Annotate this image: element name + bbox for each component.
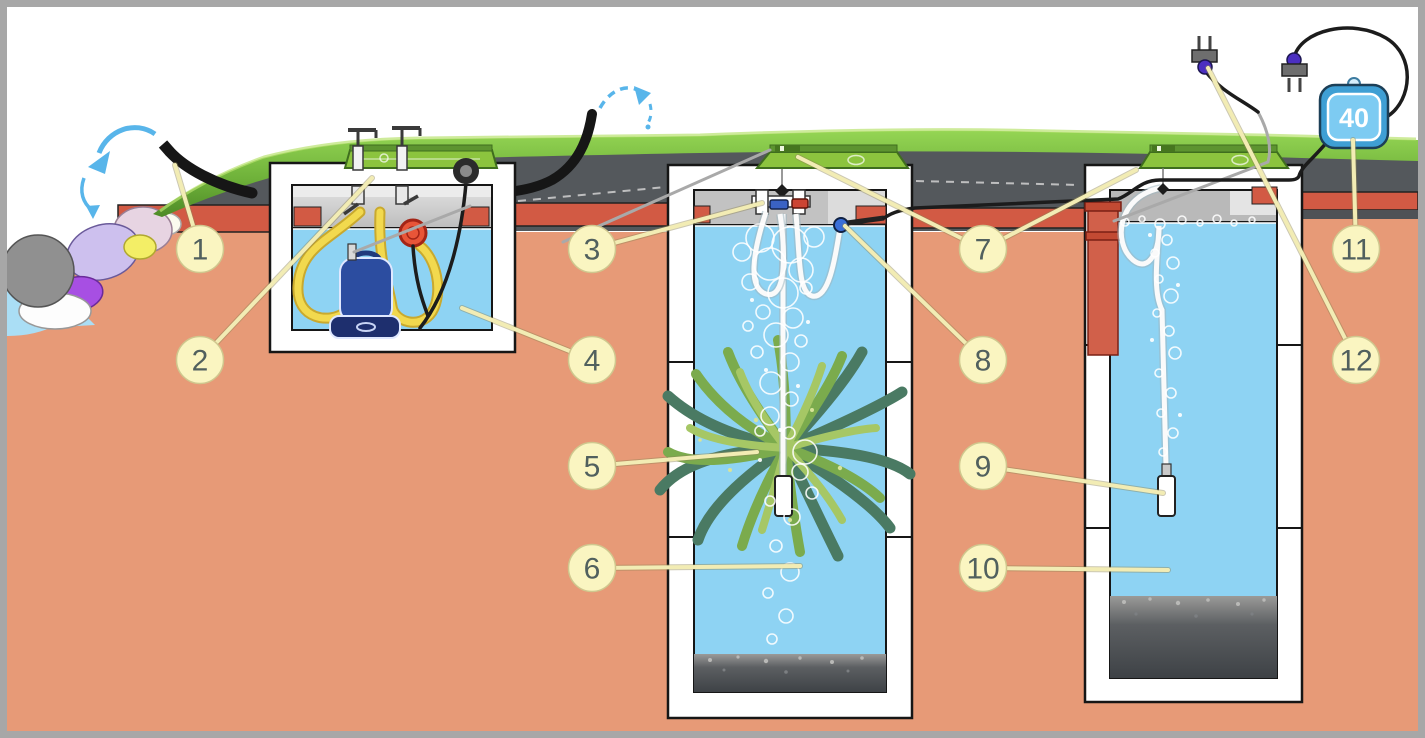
tank3-settling-chamber: [1085, 145, 1302, 702]
tank2-lid: [757, 152, 908, 168]
air-pump-capacity-label: 40: [1339, 103, 1369, 133]
tank3-sludge: [1110, 596, 1277, 678]
callout-2: 2: [177, 337, 224, 384]
callout-5: 5: [569, 443, 616, 490]
callout-6-number: 6: [584, 553, 601, 586]
inlet-pipe-body: [1088, 207, 1118, 355]
callout-1-number: 1: [192, 234, 209, 267]
tank2-lid-hatch: [775, 145, 800, 152]
arrow-tail-head: [86, 205, 100, 219]
leader-6: [592, 566, 800, 568]
tap-riser: [353, 146, 363, 170]
tank2-lid-hatch-slit: [780, 146, 784, 151]
callout-11: 11: [1333, 226, 1380, 273]
callout-12: 12: [1333, 337, 1380, 384]
callout-4: 4: [569, 337, 616, 384]
tank3-lid-hatch-slit: [1157, 146, 1161, 151]
flow-arrow-vent-icon: [600, 86, 651, 130]
pump-base: [330, 316, 400, 338]
callout-10-number: 10: [966, 553, 999, 586]
callout-10: 10: [960, 545, 1007, 592]
tank1-lid-edge: [350, 145, 492, 151]
valve-handle-red: [792, 199, 808, 208]
callout-4-number: 4: [584, 345, 601, 378]
leader-10: [983, 568, 1168, 570]
tap-riser: [397, 146, 407, 170]
arrow-arc: [99, 128, 155, 153]
valve-handle-blue: [770, 200, 788, 209]
arrow-tail: [82, 178, 92, 210]
callout-5-number: 5: [584, 451, 601, 484]
tank3-lid: [1140, 152, 1288, 168]
outlet-pipe-mouth: [163, 144, 170, 152]
callout-6: 6: [569, 545, 616, 592]
diagram-canvas: 40 1 2 3 4 5 6 7 8 9 10 11 12: [0, 0, 1425, 738]
pump-body: [340, 258, 392, 322]
callout-11-number: 11: [1340, 234, 1371, 267]
callout-3-number: 3: [584, 234, 601, 267]
arrow-tail: [648, 104, 651, 123]
callout-2-number: 2: [192, 345, 209, 378]
subbase-band-right: [1302, 210, 1418, 219]
tank2-filter-chamber: [660, 145, 912, 718]
stone: [124, 235, 156, 259]
callout-9-number: 9: [975, 451, 992, 484]
diffuser-connector: [1162, 464, 1171, 476]
callout-7-number: 7: [975, 234, 992, 267]
callout-8: 8: [960, 337, 1007, 384]
tank2-sediment: [694, 654, 886, 692]
brick-band-right: [1302, 192, 1418, 210]
arrow-dot: [646, 125, 651, 130]
tank3-inlet-pipe: [1085, 202, 1121, 355]
arrow-head: [88, 151, 110, 174]
grommet-inner: [460, 165, 472, 177]
cable-grommet-icon: [453, 158, 479, 184]
stone: [2, 235, 74, 307]
tank3-air-diffuser-icon: [1158, 476, 1175, 516]
plug-body: [1282, 64, 1307, 76]
arrow-head: [634, 86, 651, 105]
inlet-pipe-joint: [1086, 232, 1120, 240]
callout-9: 9: [960, 443, 1007, 490]
callout-1: 1: [177, 226, 224, 273]
diagram-screenshot: 40 1 2 3 4 5 6 7 8 9 10 11 12: [0, 0, 1425, 738]
tank1-brick-left: [294, 207, 321, 226]
callout-3: 3: [569, 226, 616, 273]
callout-8-number: 8: [975, 345, 992, 378]
inlet-pipe-cap: [1085, 202, 1121, 211]
callout-7: 7: [960, 226, 1007, 273]
callout-12-number: 12: [1339, 345, 1372, 378]
tank3-lid-hatch: [1152, 145, 1175, 152]
tank1-brick-right: [462, 207, 489, 226]
tank1-headspace-strip: [293, 186, 491, 197]
